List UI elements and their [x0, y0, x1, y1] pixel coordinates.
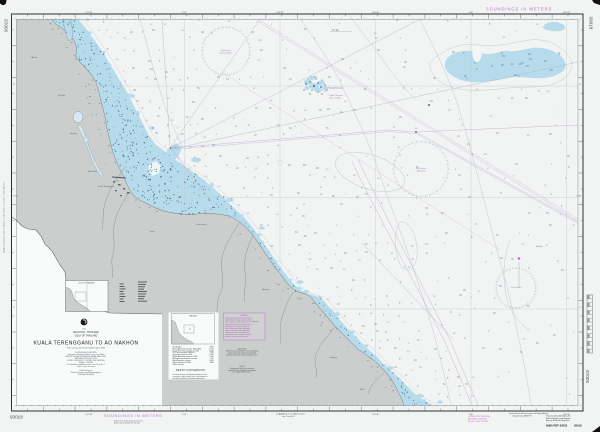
svg-text:From surveys by the British Ad: From surveys by the British Admiralty to… [67, 347, 105, 350]
svg-text:Marang: Marang [262, 289, 269, 291]
svg-text:to change without notice.: to change without notice. [233, 371, 252, 374]
svg-text:93018: 93018 [574, 423, 582, 427]
svg-text:Depth conversion scale: 1 fath: Depth conversion scale: 1 fathom = 1.83 … [3, 181, 6, 253]
svg-text:K Besut: K Besut [30, 56, 37, 59]
svg-text:Dumping Area: Dumping Area [219, 52, 233, 55]
svg-text:103°40': 103°40' [372, 12, 380, 14]
svg-text:6°: 6° [579, 84, 581, 86]
svg-text:93018: 93018 [4, 19, 9, 32]
svg-text:93018: 93018 [585, 370, 590, 383]
svg-text:Merang: Merang [70, 133, 77, 135]
svg-text:Depth curves in meters: Depth curves in meters [77, 365, 96, 368]
svg-text:SOUNDINGS IN METERS: SOUNDINGS IN METERS [104, 413, 163, 418]
svg-text:93018: 93018 [589, 17, 594, 30]
svg-text:104°20': 104°20' [563, 12, 571, 14]
svg-text:NIMA REF 93018: NIMA REF 93018 [546, 424, 568, 428]
svg-text:Kuala Terengganu: Kuala Terengganu [98, 186, 114, 188]
svg-text:(see note A): (see note A) [329, 97, 341, 100]
svg-text:Setiu: Setiu [150, 230, 155, 233]
svg-text:Dungun: Dungun [330, 357, 337, 359]
svg-text:102°40': 102°40' [85, 414, 93, 416]
svg-text:Ko Kra: Ko Kra [536, 245, 543, 248]
svg-text:103°: 103° [182, 414, 187, 416]
svg-text:Bethesda, Maryland: Bethesda, Maryland [78, 373, 94, 376]
svg-text:103°20': 103°20' [276, 12, 284, 14]
svg-text:Batu Rakit: Batu Rakit [88, 170, 98, 173]
svg-text:(Auth 23): (Auth 23) [417, 170, 426, 173]
svg-text:DEPTH CONVERSION: DEPTH CONVERSION [176, 369, 205, 372]
svg-text:5°: 5° [13, 307, 15, 309]
svg-text:102°40': 102°40' [85, 12, 93, 14]
svg-text:KUALA TERENGGANU TO AO NAKHON: KUALA TERENGGANU TO AO NAKHON [33, 341, 138, 347]
svg-text:NOTE A: NOTE A [241, 314, 248, 317]
svg-text:8TH ED. JULY 25 1998: 8TH ED. JULY 25 1998 [468, 421, 488, 423]
svg-text:Chendering: Chendering [196, 224, 206, 226]
svg-text:Agency, Bethesda, Maryland: Agency, Bethesda, Maryland [546, 419, 569, 422]
svg-text:Fish Haven: Fish Haven [511, 287, 522, 289]
svg-text:5°30': 5°30' [577, 196, 583, 198]
svg-text:5°30': 5°30' [13, 196, 19, 198]
svg-text:the tables published in relate: the tables published in related publicat… [173, 377, 206, 380]
svg-text:THAILAND: THAILAND [189, 314, 198, 317]
svg-text:SOUNDINGS IN METERS: SOUNDINGS IN METERS [486, 6, 552, 11]
svg-text:5°: 5° [579, 307, 581, 309]
svg-text:Other sources: Other sources [173, 363, 184, 366]
svg-text:GULF OF THAILAND: GULF OF THAILAND [75, 334, 98, 337]
svg-text:1966: 1966 [210, 362, 214, 364]
svg-text:within the 20 meter curve alon: within the 20 meter curve along this coa… [226, 354, 258, 357]
svg-text:93018: 93018 [10, 414, 23, 419]
svg-text:103°: 103° [182, 12, 187, 14]
svg-text:103°40': 103°40' [372, 414, 380, 416]
svg-text:see Chart No. 1: see Chart No. 1 [282, 415, 295, 418]
svg-text:104°: 104° [469, 12, 474, 14]
svg-text:Kg Raja: Kg Raja [58, 95, 66, 97]
svg-text:6°: 6° [13, 84, 15, 86]
svg-text:Tokong Kemudi: Tokong Kemudi [328, 88, 343, 90]
